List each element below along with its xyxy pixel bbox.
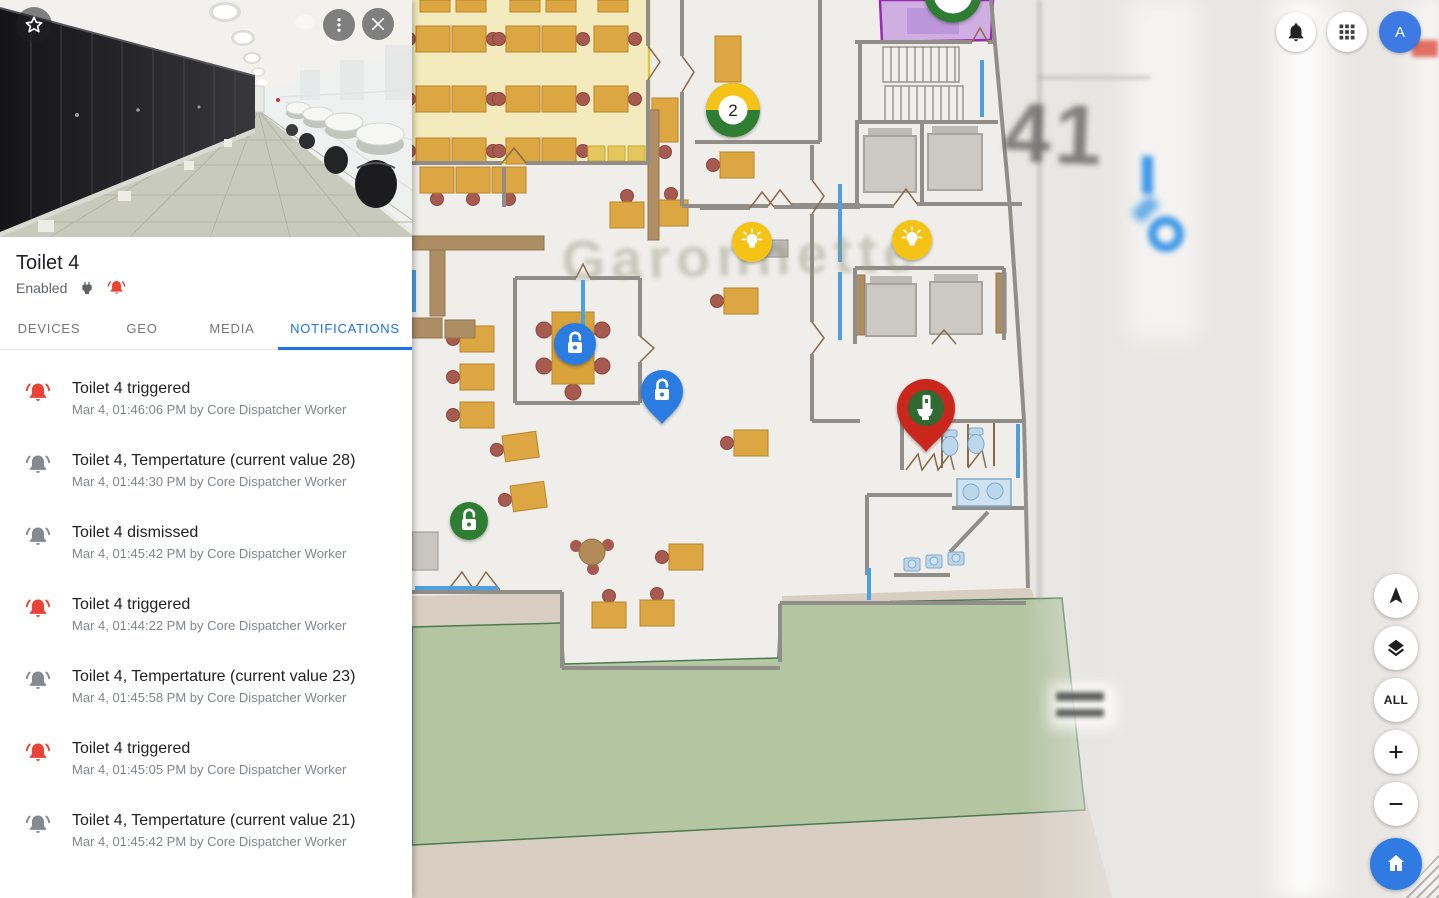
tab-devices[interactable]: DEVICES	[0, 307, 98, 349]
apps-grid-button[interactable]	[1327, 12, 1367, 52]
notification-title: Toilet 4, Tempertature (current value 23…	[72, 667, 396, 687]
layers-icon	[1385, 637, 1407, 659]
alarm-bell-icon	[25, 813, 51, 837]
floor-plan[interactable]: Garonnette	[412, 0, 1439, 898]
notification-item[interactable]: Toilet 4, Tempertature (current value 28…	[0, 437, 412, 509]
alarm-bell-icon	[25, 453, 51, 477]
alarm-bell-icon	[25, 669, 51, 693]
notification-title: Toilet 4 dismissed	[72, 523, 396, 543]
notification-title: Toilet 4 triggered	[72, 595, 396, 615]
alarm-bell-icon	[25, 525, 51, 549]
tab-media[interactable]: MEDIA	[186, 307, 278, 349]
notification-meta: Mar 4, 01:44:22 PM by Core Dispatcher Wo…	[72, 617, 396, 635]
notification-meta: Mar 4, 01:45:42 PM by Core Dispatcher Wo…	[72, 545, 396, 563]
compass-button[interactable]	[1374, 574, 1418, 618]
notification-meta: Mar 4, 01:45:58 PM by Core Dispatcher Wo…	[72, 689, 396, 707]
notifications-bell-icon	[1285, 21, 1307, 43]
close-icon	[369, 15, 387, 33]
notification-item[interactable]: Toilet 4, Tempertature (current value 21…	[0, 797, 412, 854]
tab-bar: DEVICES GEO MEDIA NOTIFICATIONS	[0, 307, 412, 350]
plus-icon	[1385, 741, 1407, 763]
notification-title: Toilet 4 triggered	[72, 739, 396, 759]
notification-item[interactable]: Toilet 4 dismissed Mar 4, 01:45:42 PM by…	[0, 509, 412, 581]
minus-icon	[1385, 793, 1407, 815]
notification-meta: Mar 4, 01:46:06 PM by Core Dispatcher Wo…	[72, 401, 396, 419]
cluster-marker-partial[interactable]	[929, 0, 977, 18]
kebab-menu-icon	[330, 16, 348, 34]
more-options-button[interactable]	[323, 9, 355, 41]
notification-item[interactable]: Toilet 4 triggered Mar 4, 01:46:06 PM by…	[0, 365, 412, 437]
app-window: Garonnette	[0, 0, 1439, 898]
compass-arrow-icon	[1385, 585, 1407, 607]
notification-title: Toilet 4, Tempertature (current value 21…	[72, 811, 396, 831]
notification-meta: Mar 4, 01:44:30 PM by Core Dispatcher Wo…	[72, 473, 396, 491]
alarm-bell-icon	[25, 741, 51, 765]
indoor-map[interactable]: Garonnette	[412, 0, 1439, 898]
zoom-out-button[interactable]	[1374, 782, 1418, 826]
page-title: Toilet 4	[16, 251, 396, 275]
notification-item[interactable]: Toilet 4 triggered Mar 4, 01:44:22 PM by…	[0, 581, 412, 653]
alarm-bell-icon	[107, 279, 126, 297]
star-icon	[23, 14, 45, 36]
light-bulb-marker[interactable]	[732, 222, 772, 262]
light-bulb-marker[interactable]	[892, 220, 932, 260]
apps-grid-icon	[1337, 22, 1357, 42]
notification-item[interactable]: Toilet 4 triggered Mar 4, 01:45:05 PM by…	[0, 725, 412, 797]
location-photo	[0, 0, 412, 237]
notification-meta: Mar 4, 01:45:42 PM by Core Dispatcher Wo…	[72, 833, 396, 851]
tab-notifications[interactable]: NOTIFICATIONS	[278, 307, 412, 349]
notifications-button[interactable]	[1276, 12, 1316, 52]
status-label: Enabled	[16, 280, 67, 296]
alarm-bell-icon	[25, 597, 51, 621]
notification-title: Toilet 4 triggered	[72, 379, 396, 399]
notification-list: Toilet 4 triggered Mar 4, 01:46:06 PM by…	[0, 350, 412, 854]
notification-meta: Mar 4, 01:45:05 PM by Core Dispatcher Wo…	[72, 761, 396, 779]
cluster-marker[interactable]: 2	[706, 83, 760, 137]
user-avatar[interactable]: A	[1379, 11, 1421, 53]
home-icon	[1384, 852, 1408, 876]
cluster-count: 2	[728, 101, 737, 120]
power-plug-icon	[79, 280, 95, 296]
lock-marker-green[interactable]	[450, 502, 488, 540]
notification-item[interactable]: Toilet 4, Tempertature (current value 23…	[0, 653, 412, 725]
home-button[interactable]	[1370, 838, 1422, 890]
lock-marker-blue[interactable]	[554, 323, 596, 365]
layers-button[interactable]	[1374, 626, 1418, 670]
alarm-bell-icon	[25, 381, 51, 405]
all-floors-button[interactable]: ALL	[1374, 678, 1418, 722]
favorite-button[interactable]	[16, 7, 52, 43]
tab-geo[interactable]: GEO	[98, 307, 186, 349]
zoom-in-button[interactable]	[1374, 730, 1418, 774]
detail-panel: Toilet 4 Enabled DEVICES GEO MEDIA NOTIF…	[0, 0, 412, 898]
notification-title: Toilet 4, Tempertature (current value 28…	[72, 451, 396, 471]
close-panel-button[interactable]	[362, 8, 394, 40]
